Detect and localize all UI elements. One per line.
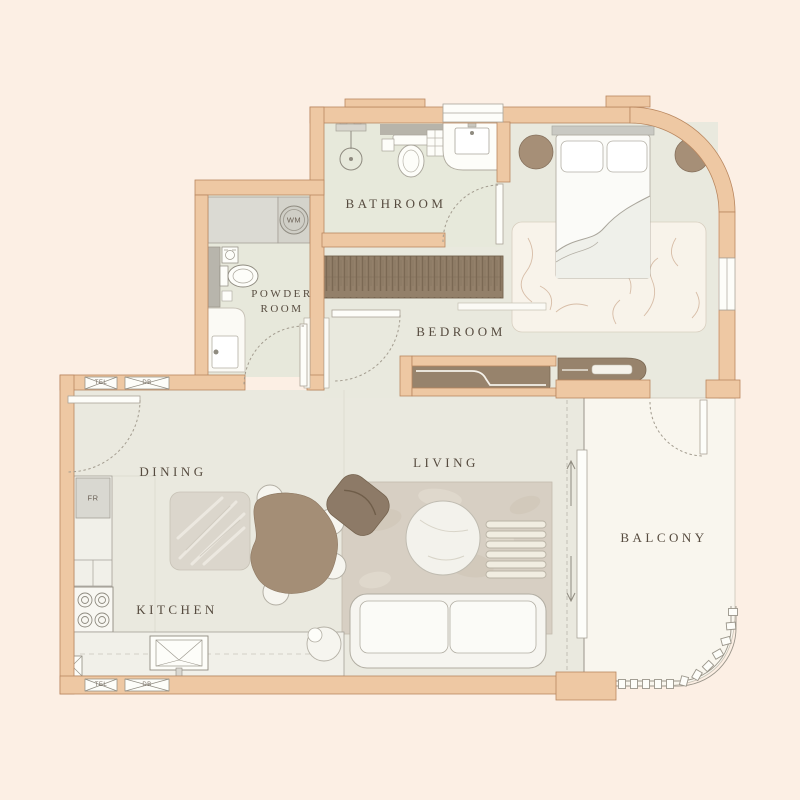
laundry-counter — [208, 197, 278, 243]
room-label-balcony: BALCONY — [620, 530, 707, 546]
wall-jamb — [324, 318, 329, 388]
double-bed — [552, 126, 654, 278]
room-label-bedroom: BEDROOM — [416, 324, 506, 340]
floor-plan: BATHROOM POWDER ROOM BEDROOM DINING LIVI… — [0, 0, 800, 800]
bathroom-window — [443, 104, 503, 122]
room-label-bathroom: BATHROOM — [346, 196, 447, 212]
washing-machine-label: WM — [287, 216, 301, 225]
room-label-living: LIVING — [413, 455, 479, 471]
wardrobe — [322, 256, 503, 298]
pillow-left — [561, 141, 603, 172]
room-label-dining: DINING — [139, 464, 206, 480]
tel-label-bottom: TEL — [95, 682, 108, 688]
tel-label-top: TEL — [95, 380, 108, 386]
powder-toilet — [220, 265, 258, 287]
towel-rack — [427, 130, 444, 156]
room-label-powder-room: POWDER ROOM — [240, 287, 324, 317]
fridge-label: FR — [88, 494, 99, 503]
powder-sink — [222, 247, 238, 263]
balcony-bench — [558, 358, 646, 382]
nightstand-left — [519, 135, 553, 169]
bedroom-window — [719, 258, 735, 310]
bathroom-vanity — [443, 121, 503, 170]
powder-shower — [207, 308, 245, 372]
room-label-kitchen: KITCHEN — [136, 602, 218, 618]
db-label-bottom: DB — [142, 682, 151, 688]
floor-plan-drawing — [0, 0, 800, 800]
toilet-roll-holder — [382, 139, 394, 151]
side-table — [307, 627, 341, 661]
coffee-table — [406, 501, 480, 575]
kitchen-sink — [150, 636, 208, 676]
db-label-top: DB — [142, 380, 151, 386]
sliding-door — [577, 450, 587, 638]
powder-vanity — [208, 247, 220, 307]
dining-rug — [170, 492, 250, 570]
stove — [73, 587, 113, 632]
pillow-right — [607, 141, 647, 172]
sofa — [350, 594, 546, 668]
